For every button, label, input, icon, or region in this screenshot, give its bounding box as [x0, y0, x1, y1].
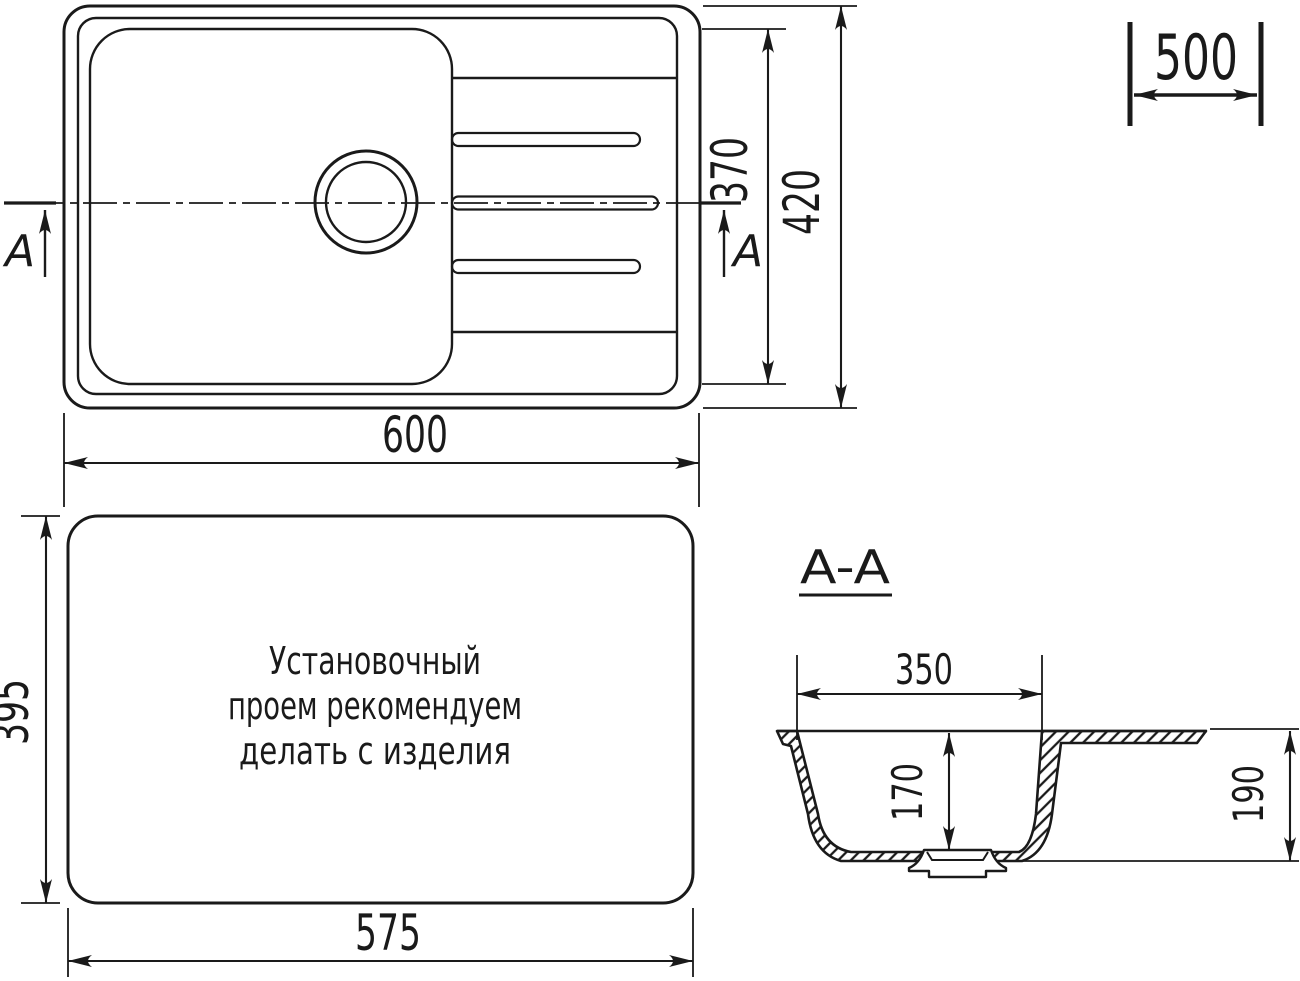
section-view: A-A 350 170 190	[777, 540, 1299, 877]
technical-drawing: A A 600 370 420 500 Установочный проем р…	[0, 0, 1300, 981]
dim-420-label: 420	[773, 169, 831, 235]
brand-mark-label: 500	[1154, 21, 1238, 94]
bowl-outline	[90, 29, 452, 384]
brand-mark: 500	[1130, 21, 1261, 126]
dim-370-label: 370	[701, 137, 759, 203]
dim-350-label: 350	[895, 645, 953, 694]
cutout-note-line3: делать с изделия	[239, 729, 511, 773]
section-wall-cut	[777, 731, 1206, 861]
cutout-view: Установочный проем рекомендуем делать с …	[0, 516, 693, 977]
top-view: A A 600 370 420	[2, 6, 857, 507]
section-label-right: A	[730, 226, 763, 277]
section-drain-boss	[909, 850, 1006, 877]
section-label-left: A	[2, 226, 35, 277]
drain-circle-outer	[315, 151, 417, 253]
sink-outer-outline	[64, 6, 700, 408]
dim-170-label: 170	[883, 763, 932, 821]
dim-600-label: 600	[382, 406, 448, 464]
drainboard-ridge-top	[452, 133, 640, 146]
dim-575-label: 575	[355, 904, 421, 962]
cutout-note-line1: Установочный	[269, 639, 481, 683]
section-title: A-A	[800, 540, 891, 594]
drain-circle-inner	[326, 162, 406, 242]
dim-395-label: 395	[0, 679, 40, 745]
dim-190-label: 190	[1224, 765, 1273, 823]
drawing-canvas: A A 600 370 420 500 Установочный проем р…	[0, 0, 1300, 981]
drainboard-ridge-bottom	[452, 260, 640, 273]
sink-rim-inner-outline	[78, 18, 677, 394]
cutout-note-line2: проем рекомендуем	[228, 684, 522, 728]
